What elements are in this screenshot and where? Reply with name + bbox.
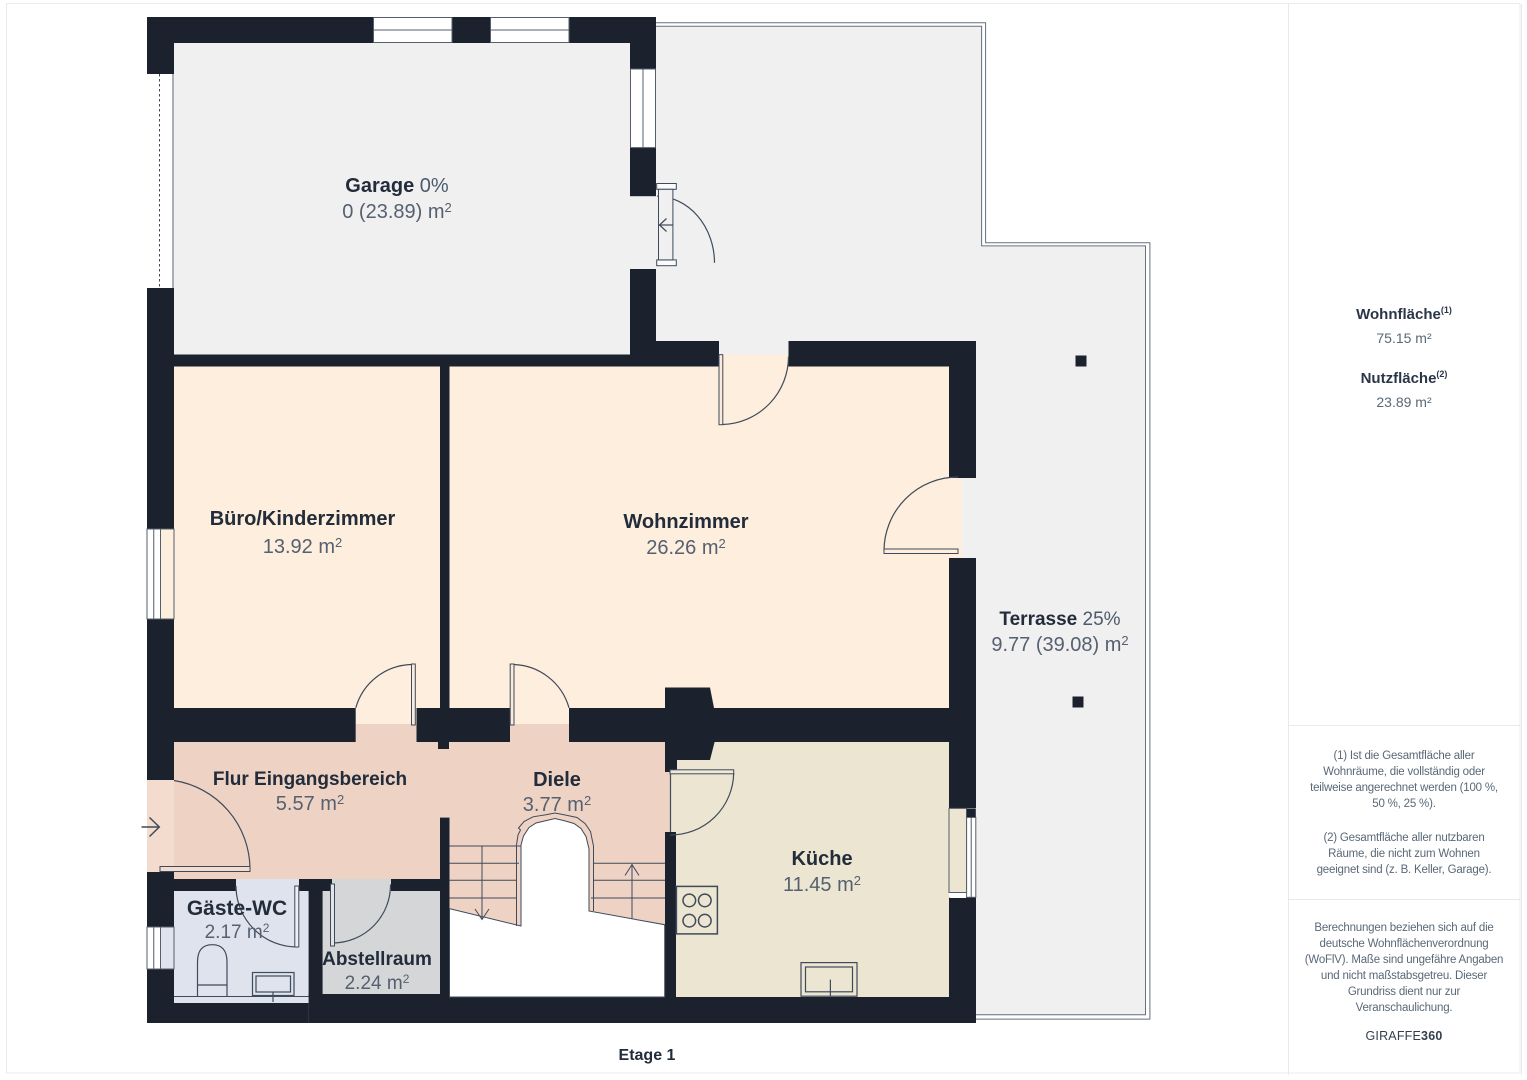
svg-text:Abstellraum: Abstellraum	[322, 949, 432, 970]
svg-text:Küche: Küche	[791, 848, 852, 870]
svg-text:Flur Eingangsbereich: Flur Eingangsbereich	[213, 769, 407, 790]
svg-text:3.77 m2: 3.77 m2	[523, 793, 591, 816]
svg-text:0 (23.89) m2: 0 (23.89) m2	[342, 200, 452, 223]
svg-text:Diele: Diele	[533, 769, 581, 791]
svg-text:2.17 m2: 2.17 m2	[205, 921, 270, 943]
svg-text:9.77 (39.08) m2: 9.77 (39.08) m2	[991, 633, 1128, 656]
svg-text:Garage 0%: Garage 0%	[345, 175, 449, 197]
svg-text:Wohnzimmer: Wohnzimmer	[623, 511, 748, 533]
svg-text:5.57 m2: 5.57 m2	[276, 792, 344, 815]
svg-text:Etage 1: Etage 1	[619, 1047, 676, 1064]
svg-text:Terrasse 25%: Terrasse 25%	[999, 609, 1120, 630]
svg-text:2.24 m2: 2.24 m2	[345, 972, 410, 994]
svg-text:Gäste-WC: Gäste-WC	[187, 897, 287, 920]
svg-text:11.45 m2: 11.45 m2	[783, 873, 861, 896]
svg-text:26.26 m2: 26.26 m2	[646, 536, 726, 559]
svg-text:Büro/Kinderzimmer: Büro/Kinderzimmer	[210, 508, 396, 530]
svg-text:13.92 m2: 13.92 m2	[263, 535, 343, 558]
